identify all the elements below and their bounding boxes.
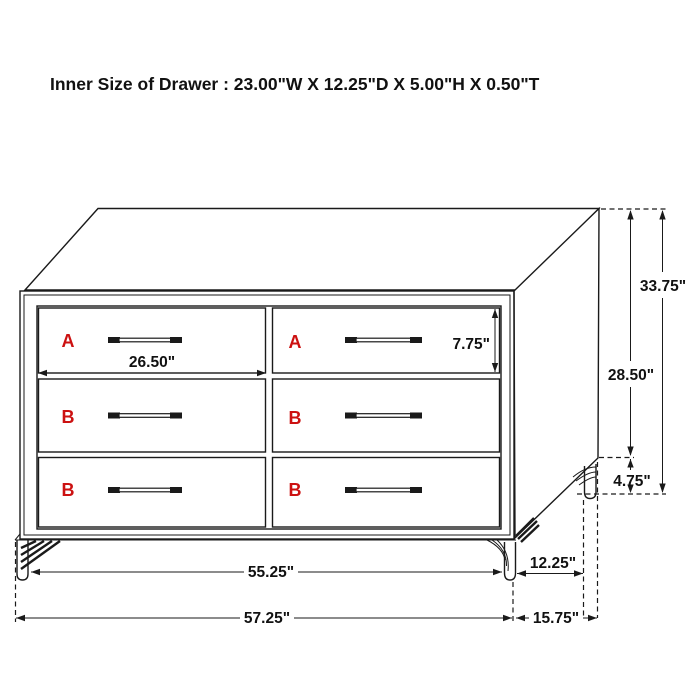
drawer-label: B (62, 407, 75, 427)
page-title: Inner Size of Drawer : 23.00"W X 12.25"D… (50, 74, 540, 94)
dim-value: 7.75" (452, 336, 490, 353)
dim-value: 57.25" (244, 610, 290, 627)
dim-leg-height: 4.75" (613, 459, 651, 493)
dim-overall-width: 57.25" (16, 610, 512, 627)
drawer-middle-right: B (273, 379, 500, 452)
drawer-handle-icon (108, 337, 182, 343)
dim-value: 33.75" (640, 278, 686, 295)
dim-value: 26.50" (129, 354, 175, 371)
drawer-handle-icon (345, 487, 422, 493)
dim-body-height: 28.50" (608, 210, 654, 456)
top-panel (25, 209, 599, 291)
dim-overall-height: 33.75" (640, 210, 686, 493)
dim-leg-inset-depth: 12.25" (517, 555, 583, 577)
drawer-handle-icon (108, 487, 182, 493)
drawer-handle-icon (345, 337, 422, 343)
drawer-label: B (289, 480, 302, 500)
dim-value: 15.75" (533, 610, 579, 627)
drawer-handle-icon (108, 413, 182, 419)
drawer-label: A (289, 332, 302, 352)
front-right-leg hairpin-leg-icon (487, 540, 516, 580)
drawer-middle-left: B (39, 379, 266, 452)
dim-overall-depth: 15.75" (516, 610, 597, 627)
drawer-label: B (289, 408, 302, 428)
drawer-label: B (62, 480, 75, 500)
dim-drawer-height: 7.75" (452, 309, 498, 372)
product-dimension-sheet: Inner Size of Drawer : 23.00"W X 12.25"D… (0, 0, 700, 700)
dim-body-width: 55.25" (31, 564, 502, 581)
dim-value: 55.25" (248, 564, 294, 581)
dim-value: 4.75" (613, 473, 651, 490)
dim-value: 12.25" (530, 555, 576, 572)
drawer-bottom-right: B (273, 458, 500, 528)
dim-drawer-width: 26.50" (38, 354, 266, 376)
dim-value: 28.50" (608, 367, 654, 384)
drawer-bottom-left: B (39, 458, 266, 528)
dresser-diagram: Inner Size of Drawer : 23.00"W X 12.25"D… (0, 0, 700, 700)
drawer-handle-icon (345, 413, 422, 419)
drawer-label: A (62, 331, 75, 351)
